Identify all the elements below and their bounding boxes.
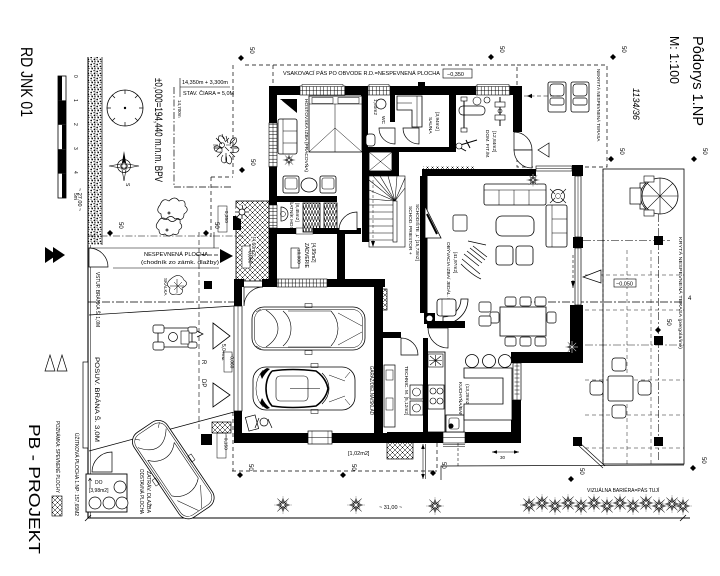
svg-text:3: 3	[72, 147, 78, 150]
svg-text:[35,28m2]: [35,28m2]	[375, 374, 381, 395]
svg-text:SCHOD. PRIESTOR +: SCHOD. PRIESTOR +	[407, 206, 413, 255]
svg-text:[8,45m2]: [8,45m2]	[294, 203, 300, 222]
svg-text:1: 1	[72, 99, 78, 102]
svg-text:[41,97m2]: [41,97m2]	[452, 252, 458, 273]
svg-text:[3,98m2]: [3,98m2]	[89, 488, 109, 494]
svg-text:ODSTAVNÁ PLOCHA: ODSTAVNÁ PLOCHA	[138, 469, 145, 515]
svg-text:WC: WC	[380, 116, 386, 125]
svg-text:30: 30	[500, 455, 506, 460]
svg-text:−0,050: −0,050	[616, 282, 633, 288]
svg-text:[3,94m2]: [3,94m2]	[434, 112, 440, 131]
svg-text:Pôdorys 1.NP: Pôdorys 1.NP	[689, 36, 706, 126]
svg-text:POSUV. BRÁNA Š. 3,0M: POSUV. BRÁNA Š. 3,0M	[93, 357, 102, 442]
svg-text:[4,95m2]: [4,95m2]	[310, 243, 316, 263]
svg-text:DP: DP	[200, 379, 206, 387]
svg-text:0: 0	[72, 75, 78, 78]
svg-text:TECHNIC. M. [5,12m2]: TECHNIC. M. [5,12m2]	[403, 366, 409, 415]
svg-text:NEKRYTÁ NESPEVNENÁ TERASA: NEKRYTÁ NESPEVNENÁ TERASA	[596, 69, 602, 141]
svg-text:R: R	[200, 360, 206, 365]
svg-text:~ 31,00 ~: ~ 31,00 ~	[379, 505, 402, 511]
svg-text:KUCHYŇA/BAR: KUCHYŇA/BAR	[457, 382, 464, 417]
svg-text:±0,000=194,440 m.n.m. BPV: ±0,000=194,440 m.n.m. BPV	[152, 78, 164, 182]
svg-text:STAV. ČIARA = 5,0M: STAV. ČIARA = 5,0M	[183, 90, 235, 97]
svg-text:SAUNA: SAUNA	[427, 117, 433, 134]
svg-text:14,700m: 14,700m	[177, 100, 182, 118]
svg-text:2: 2	[72, 123, 78, 126]
svg-text:VSTUP. BRÁNKA Š. 1,0M: VSTUP. BRÁNKA Š. 1,0M	[94, 272, 101, 327]
svg-text:−0,060: −0,060	[229, 354, 235, 369]
svg-text:ZÁDVERIE: ZÁDVERIE	[303, 243, 310, 269]
svg-text:(13,28m2): (13,28m2)	[464, 384, 470, 406]
svg-text:~ 27,00 ~: ~ 27,00 ~	[76, 188, 82, 211]
svg-text:1134/36: 1134/36	[631, 88, 641, 120]
svg-text:PB - PROJEKT: PB - PROJEKT	[25, 424, 42, 554]
svg-text:−0,150: −0,150	[223, 435, 229, 450]
svg-text:SCHODIŠTE ,L' [15,73m2]: SCHODIŠTE ,L' [15,73m2]	[414, 204, 421, 261]
svg-text:DOM. FIT./M.: DOM. FIT./M.	[484, 130, 490, 159]
svg-text:VSAKOVACÍ PÁS PO OBVODE R.D.=N: VSAKOVACÍ PÁS PO OBVODE R.D.=NESPEVNENÁ …	[283, 70, 440, 77]
svg-text:−0,060: −0,060	[247, 248, 253, 264]
svg-text:POZNÁMKA: SPEVNENÉ PLOCHY: POZNÁMKA: SPEVNENÉ PLOCHY	[54, 421, 61, 493]
svg-text:ÚŽITKOVÁ PLOCHA 1.NP: 157,65M2: ÚŽITKOVÁ PLOCHA 1.NP: 157,65M2	[73, 433, 81, 516]
svg-text:OBÝVACIA IZBA/ JEDÁL. KÚT: OBÝVACIA IZBA/ JEDÁL. KÚT	[445, 242, 452, 308]
svg-text:RD JNK 01: RD JNK 01	[17, 47, 36, 117]
svg-text:NESPEVNENÁ PLOCHA: NESPEVNENÁ PLOCHA	[144, 251, 208, 258]
svg-text:14,350m + 3,300m: 14,350m + 3,300m	[182, 80, 228, 86]
svg-text:[1,02m2]: [1,02m2]	[348, 451, 370, 457]
svg-text:ZATRÁV. DLAŽBA: ZATRÁV. DLAŽBA	[145, 471, 153, 514]
svg-text:4: 4	[72, 171, 78, 174]
svg-text:−0,350: −0,350	[447, 72, 464, 78]
svg-text:[12,84m2]: [12,84m2]	[491, 131, 497, 152]
svg-text:VIZUÁLNA BARIÉRA=PÁS TUJÍ: VIZUÁLNA BARIÉRA=PÁS TUJÍ	[587, 487, 660, 494]
svg-text:GARÁŽ/DIELŇA/SKLAD: GARÁŽ/DIELŇA/SKLAD	[368, 366, 376, 415]
svg-text:M: 1:100: M: 1:100	[667, 36, 682, 84]
svg-text:(chodník zo zámk. dlažby): (chodník zo zámk. dlažby)	[141, 260, 219, 266]
svg-text:−0,350: −0,350	[223, 208, 229, 223]
svg-text:SKALKA: SKALKA	[163, 278, 168, 296]
svg-text:±0,000: ±0,000	[296, 249, 302, 264]
svg-text:KRYTÁ NESPEVNENÁ TERASA (pergo: KRYTÁ NESPEVNENÁ TERASA (pergola/iné)	[677, 237, 684, 349]
svg-text:DO: DO	[95, 480, 103, 486]
